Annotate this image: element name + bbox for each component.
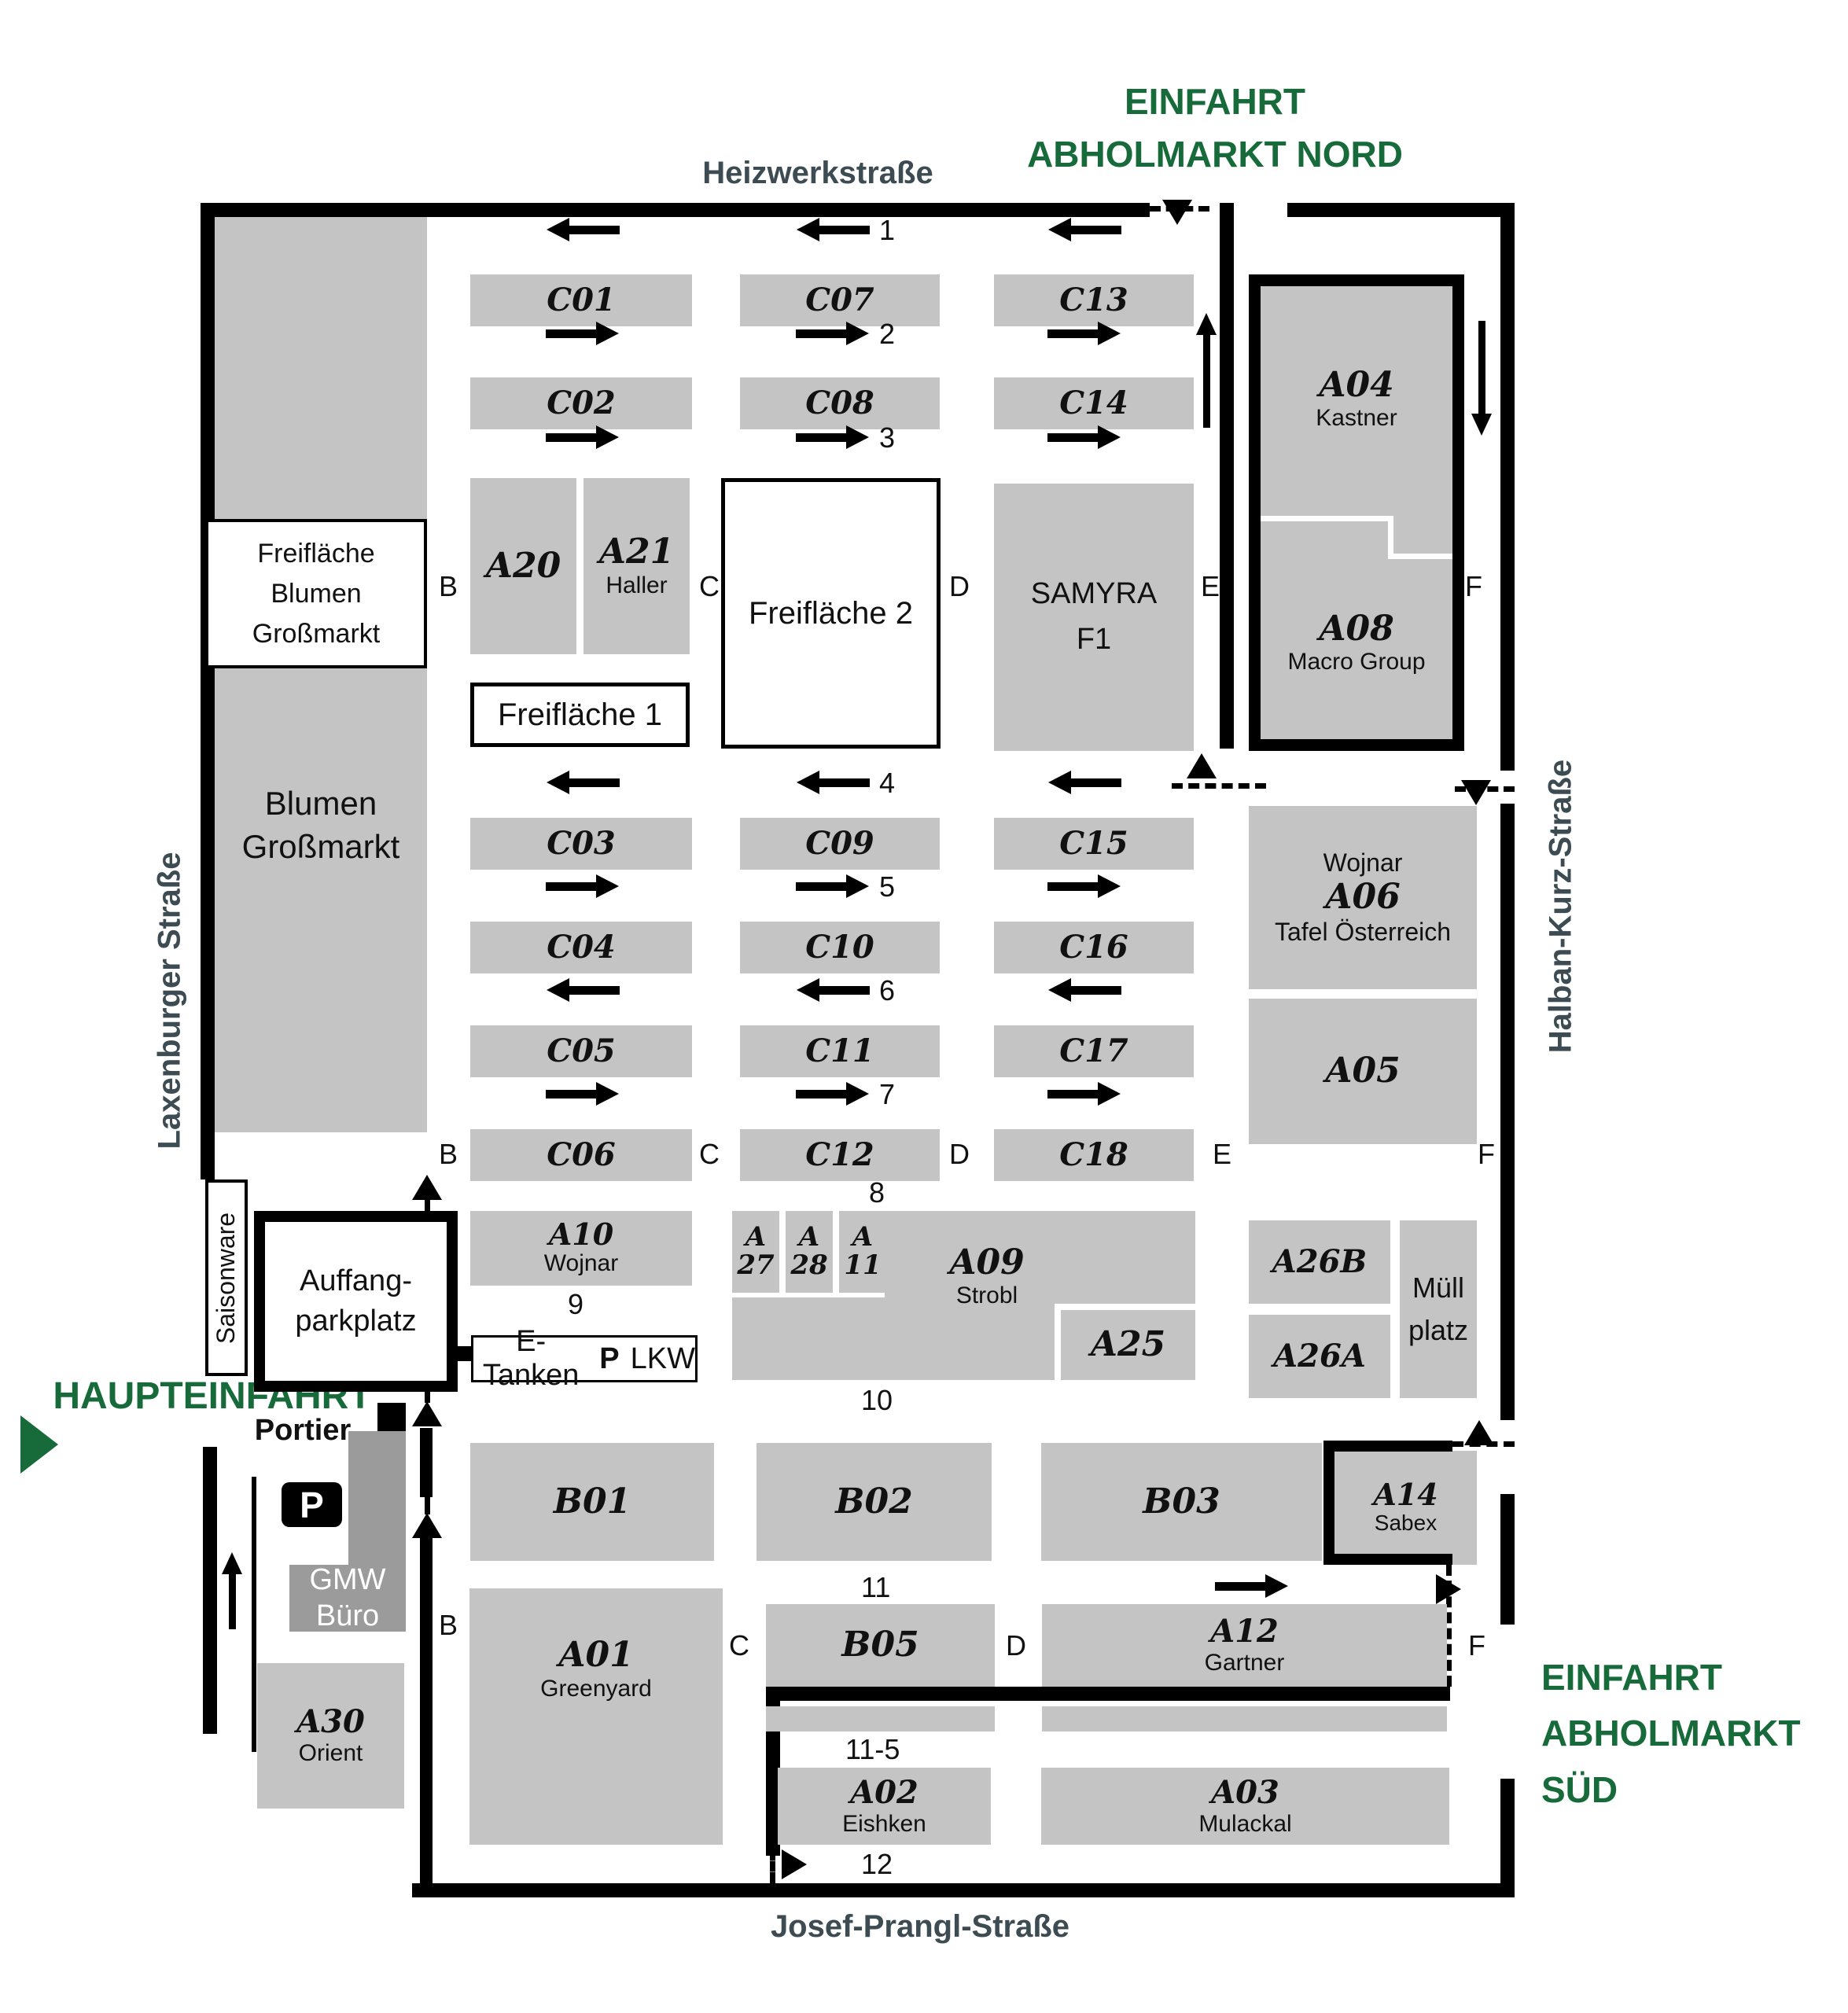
lane1-number: 1 [879,214,934,247]
a04-a08-divider-3 [1388,554,1452,559]
lane3-arrow-mid [796,433,848,442]
road-portier-solid-2 [420,1538,433,1897]
a14-frame-bottom [1323,1554,1452,1565]
lane4-arrow-west [568,778,620,787]
area-freiflaeche1: Freifläche 1 [470,683,690,747]
entrance-south-label: EINFAHRT ABHOLMARKT SÜD [1541,1650,1840,1818]
lane5-arrow-mid [796,882,848,891]
lane11-5-number: 11-5 [845,1733,900,1766]
block-a01: A01Greenyard [469,1588,723,1845]
block-a04-label: A04Kastner [1261,365,1452,432]
street-label-top: Heizwerkstraße [621,156,1014,191]
lane4-arrow-east [1069,778,1121,787]
road-east-border-4 [1500,1779,1515,1897]
block-a08-label: A08Macro Group [1261,609,1452,675]
lane7-number: 7 [879,1078,934,1111]
gate-north-arrow-icon [1162,200,1192,225]
block-c16: C16 [994,922,1194,973]
road-bottomleft-thin [252,1477,256,1752]
block-c06: C06 [470,1129,692,1181]
gate-lane11-arrow-icon [1436,1574,1461,1604]
saisonware-label: Saisonware [212,1212,241,1343]
gate-a08-arrow-icon [1461,780,1491,805]
block-b02: B02 [757,1443,992,1561]
road-south-border [412,1883,1515,1897]
area-freiflaeche2: Freifläche 2 [721,478,941,749]
freiflaeche-blumen-line2: Blumen Großmarkt [208,574,424,654]
lane5-number: 5 [879,870,934,903]
auffang-line2: parkplatz [295,1301,416,1341]
row-letter-e-2: E [1206,1138,1238,1171]
entrance-main-arrow-icon [20,1415,58,1474]
row-letter-c-1: C [694,570,725,603]
block-c02: C02 [470,377,692,429]
row-letter-c-2: C [694,1138,725,1171]
etanken-parking-icon: P [599,1342,619,1376]
road-east-border-1 [1500,203,1515,771]
road-under-b05 [771,1687,1450,1701]
facility-etanken: E-Tanken P LKW [471,1335,698,1382]
lane1-arrow-west [568,226,620,234]
parking-icon: P [282,1482,342,1527]
lane11-number: 11 [861,1571,916,1604]
block-muellplatz: Müll platz [1400,1220,1477,1398]
block-c04: C04 [470,922,692,973]
building-gmw-wing [348,1431,406,1565]
etanken-lkw-label: LKW [631,1342,695,1376]
entrance-south-line3: SÜD [1541,1762,1840,1818]
gate-a14-arrow-icon [1464,1420,1494,1445]
block-c15: C15 [994,818,1194,870]
lane1-arrow-east [1069,226,1121,234]
block-samyra: SAMYRA F1 [994,484,1194,751]
row-letter-d-1: D [944,570,975,603]
road-bottomleft-thick [203,1447,217,1734]
road-lane-e-divider [1220,203,1234,749]
block-c09: C09 [740,818,940,870]
lane6-arrow-west [568,986,620,995]
portier-gatehouse [377,1403,406,1431]
lane2-arrow-east [1047,329,1099,338]
road-east-border-2 [1500,804,1515,1420]
entrance-south-line1: EINFAHRT [1541,1650,1840,1706]
etanken-label: E-Tanken [473,1325,588,1393]
entrance-north-label: EINFAHRT ABHOLMARKT NORD [995,75,1435,180]
row-letter-c-3: C [723,1629,755,1662]
gate-e-lane-dashes [1172,783,1266,789]
block-a02: A02Eishken [778,1768,991,1845]
a14-frame-left [1323,1441,1334,1565]
gate-portier-arrow-icon-1 [412,1401,442,1426]
block-a06: Wojnar A06 Tafel Österreich [1249,806,1477,989]
block-a26a: A26A [1249,1315,1390,1398]
lane2-number: 2 [879,318,934,351]
block-c18: C18 [994,1129,1194,1181]
a04-a08-divider-2 [1388,516,1393,559]
auffang-line1: Auffang- [300,1261,412,1301]
site-map: Heizwerkstraße EINFAHRT ABHOLMARKT NORD … [0,0,1848,2013]
lane1-arrow-mid [818,226,870,234]
block-a30: A30Orient [257,1663,404,1809]
row-letter-f-1: F [1458,570,1489,603]
block-c13: C13 [994,274,1194,326]
lane3-arrow-east [1047,433,1099,442]
east-road-down-arrow [1478,321,1485,415]
block-c03: C03 [470,818,692,870]
block-a05: A05 [1249,999,1477,1144]
lane7-arrow-west [546,1090,598,1099]
block-c11: C11 [740,1025,940,1077]
lane2-arrow-mid [796,329,848,338]
block-c01: C01 [470,274,692,326]
freiflaeche-blumen-line1: Freifläche [257,534,374,574]
block-b03: B03 [1041,1443,1322,1561]
lane9-number: 9 [568,1288,623,1321]
street-label-right: Halban-Kurz-Straße [1544,553,1579,1260]
block-blumen-label: Blumen Großmarkt [215,782,427,868]
row-letter-b-1: B [433,570,464,603]
road-east-border-3 [1500,1494,1515,1625]
block-a25: A25 [1061,1310,1195,1380]
building-gmw-office: GMW Büro [289,1565,406,1632]
block-a04-a08-frame: A04Kastner A08Macro Group [1249,274,1464,751]
block-blumen-grossmarkt [215,217,427,1132]
road-portier-solid-1 [420,1428,433,1497]
block-a10: A10Wojnar [470,1211,692,1286]
block-a12-strip [1042,1706,1447,1731]
block-c14: C14 [994,377,1194,429]
lane8-number: 8 [869,1176,924,1209]
area-saisonware: Saisonware [205,1179,248,1376]
row-letter-e-1: E [1195,570,1226,603]
road-top-east [1287,203,1515,217]
block-a12: A12Gartner [1042,1604,1447,1687]
entrance-south-line2: ABHOLMARKT [1541,1706,1840,1761]
lane7-arrow-mid [796,1090,848,1099]
block-b05-strip [766,1706,995,1731]
lane10-number: 10 [861,1384,916,1417]
entrance-north-line2: ABHOLMARKT NORD [995,128,1435,181]
lane11-arrow-east [1215,1582,1267,1591]
block-c10: C10 [740,922,940,973]
block-a27: A27 [732,1211,779,1293]
street-label-bottom: Josef-Prangl-Straße [684,1909,1156,1945]
street-label-left: Laxenburger Straße [153,647,188,1355]
gate-portier-dashes-2 [425,1497,430,1514]
blumen-line1: Blumen [215,782,427,826]
block-a03: A03Mulackal [1041,1768,1449,1845]
row-letter-b-3: B [433,1609,464,1642]
block-c17: C17 [994,1025,1194,1077]
a14-frame-top [1323,1441,1452,1452]
gmw-line1: GMW [309,1562,385,1599]
area-auffangparkplatz: Auffang- parkplatz [254,1211,458,1392]
row-letter-d-3: D [1000,1629,1032,1662]
block-c12: C12 [740,1129,940,1181]
gmw-line2: Büro [316,1599,379,1635]
block-a26b: A26B [1249,1220,1390,1304]
entrance-north-line1: EINFAHRT [995,75,1435,128]
area-freiflaeche-blumen: Freifläche Blumen Großmarkt [205,519,427,668]
a04-a08-divider-1 [1261,516,1388,521]
lane6-arrow-mid [818,986,870,995]
block-a20: A20 [470,478,576,654]
block-b01: B01 [470,1443,714,1561]
lane3-number: 3 [879,421,934,454]
row-letter-b-2: B [433,1138,464,1171]
lane6-arrow-east [1069,986,1121,995]
lane4-number: 4 [879,767,934,800]
bottomleft-up-arrow [229,1573,236,1629]
lane5-arrow-east [1047,882,1099,891]
block-a09-label: A09Strobl [853,1242,1121,1309]
block-c05: C05 [470,1025,692,1077]
lane2-arrow-west [546,329,598,338]
gate-portier-arrow-icon-2 [412,1513,442,1538]
road-west-border [201,203,215,1179]
lane12-number: 12 [861,1848,916,1881]
road-top-west [201,203,1150,217]
lane7-arrow-east [1047,1090,1099,1099]
blumen-line2: Großmarkt [215,826,427,869]
row-letter-f-3: F [1461,1629,1493,1662]
block-a21: A21Haller [583,478,690,654]
gate-lane8-arrow-icon [412,1175,442,1200]
gate-lane12-dashes [770,1849,775,1883]
lane5-arrow-west [546,882,598,891]
lane-e-up-arrow [1203,333,1210,428]
lane4-arrow-mid [818,778,870,787]
gate-lane12-arrow-icon [782,1849,807,1879]
block-a14: A14Sabex [1334,1451,1477,1565]
lane6-number: 6 [879,974,934,1007]
block-b05: B05 [766,1604,995,1687]
gate-e-lane-arrow-icon [1187,753,1217,778]
block-a28: A28 [786,1211,833,1293]
lane3-arrow-west [546,433,598,442]
row-letter-d-2: D [944,1138,975,1171]
